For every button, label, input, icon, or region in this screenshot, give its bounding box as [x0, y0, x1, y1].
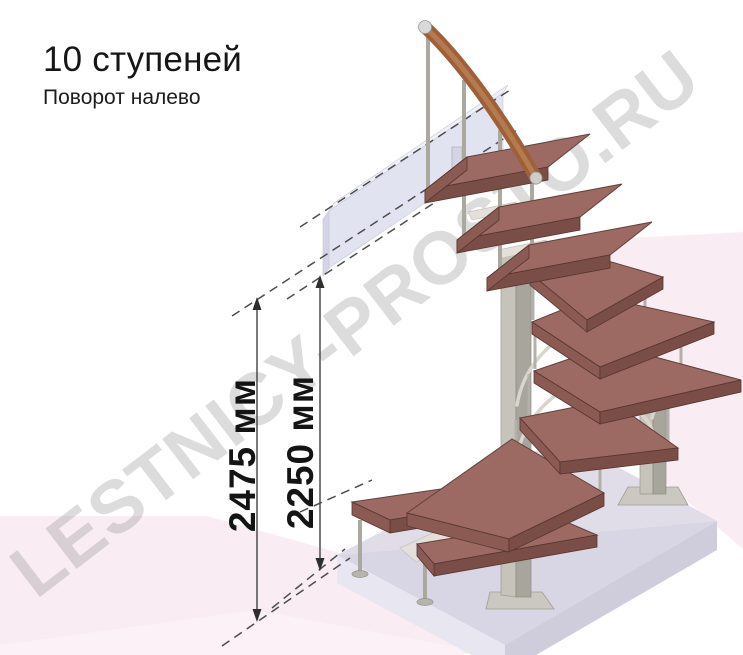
handrail-end-cap — [530, 172, 542, 184]
dimension-label-overall-height: 2475 мм — [222, 378, 263, 532]
dimension-label-floor-height: 2250 мм — [280, 375, 321, 529]
staircase-diagram-canvas: LESTNICY-PROSTO.RU — [0, 0, 743, 655]
page-subtitle: Поворот налево — [43, 86, 242, 110]
handrail-top-cap — [419, 21, 432, 34]
title-block: 10 ступеней Поворот налево — [43, 40, 242, 110]
page-title: 10 ступеней — [43, 40, 242, 80]
